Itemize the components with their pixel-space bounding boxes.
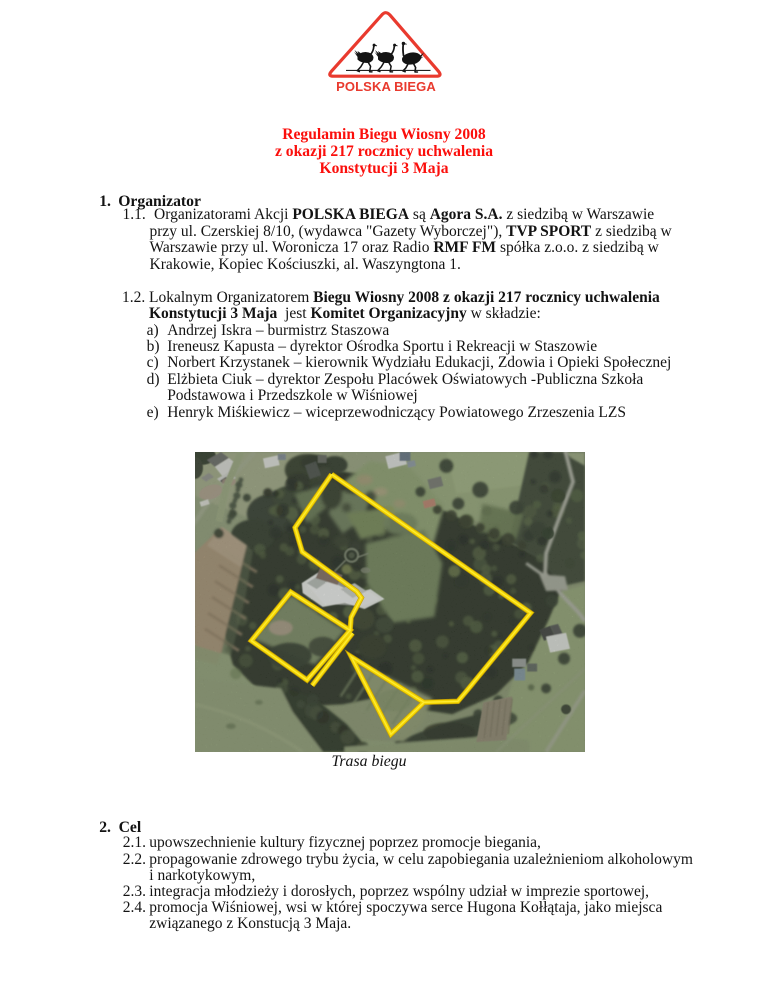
- svg-text:POLSKA BIEGA: POLSKA BIEGA: [336, 79, 436, 94]
